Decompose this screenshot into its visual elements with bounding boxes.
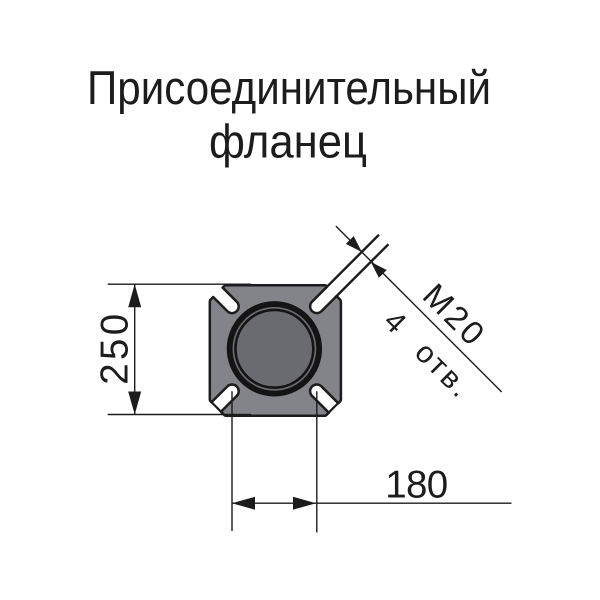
svg-text:фланец: фланец — [209, 115, 367, 168]
svg-text:Присоединительный: Присоединительный — [87, 61, 491, 114]
svg-text:180: 180 — [385, 463, 448, 506]
svg-text:250: 250 — [94, 314, 137, 385]
